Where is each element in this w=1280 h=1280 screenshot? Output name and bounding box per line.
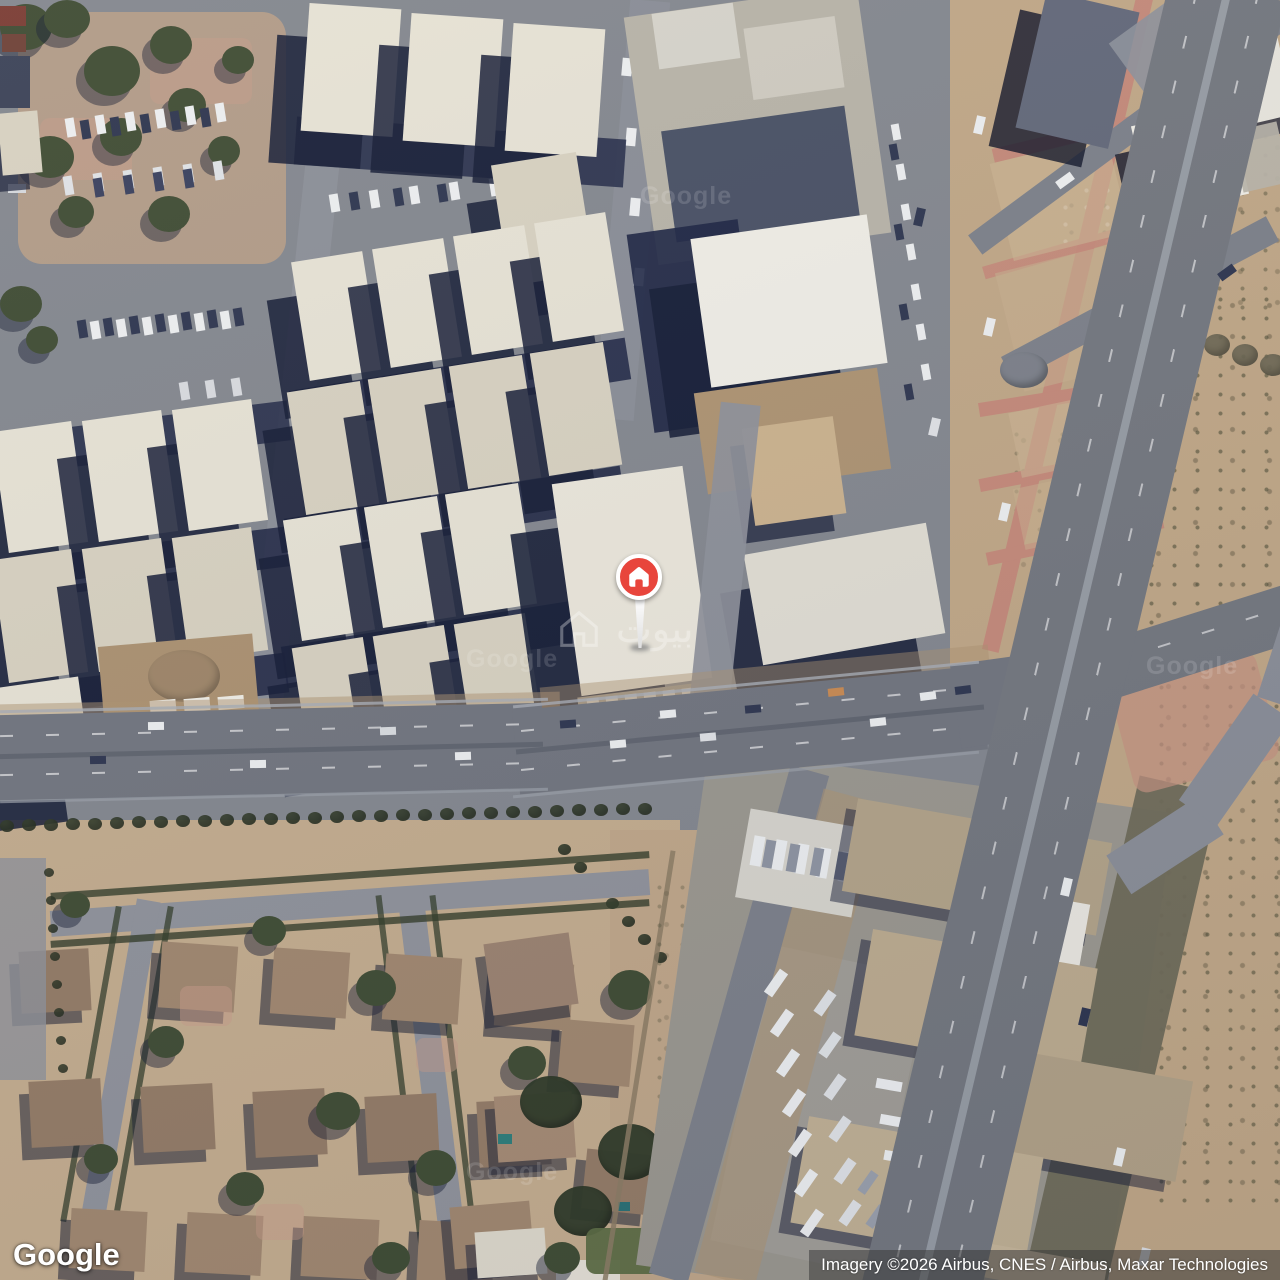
villa <box>483 932 578 1015</box>
building <box>82 410 178 542</box>
hedge <box>58 1064 68 1073</box>
hedge <box>44 819 58 831</box>
attribution-bar: Imagery ©2026 Airbus, CNES / Airbus, Max… <box>809 1250 1280 1280</box>
tree <box>0 286 42 322</box>
car <box>870 717 887 727</box>
hedge <box>48 924 58 933</box>
hedge <box>374 810 388 822</box>
hedge <box>0 820 14 832</box>
hedge <box>46 896 56 905</box>
parking-strip <box>0 858 46 1080</box>
bush <box>1204 334 1230 356</box>
attribution-text: Imagery ©2026 Airbus, CNES / Airbus, Max… <box>821 1255 1268 1274</box>
dirt-mound <box>148 650 220 702</box>
hedge <box>308 812 322 824</box>
building <box>505 23 606 157</box>
google-logo[interactable]: Google <box>13 1237 120 1273</box>
tree <box>44 0 90 38</box>
courtyard <box>416 1038 458 1072</box>
hedge <box>558 844 571 855</box>
tree <box>148 196 190 232</box>
courtyard <box>180 986 232 1026</box>
hedge <box>110 817 124 829</box>
building <box>0 110 43 175</box>
hedge <box>574 862 587 873</box>
roof-structure <box>0 6 26 26</box>
hedge <box>484 807 498 819</box>
tree <box>84 46 140 96</box>
bush <box>1260 354 1280 376</box>
car <box>380 727 396 736</box>
car <box>250 760 266 768</box>
hedge <box>330 811 344 823</box>
car <box>560 719 577 728</box>
villa <box>28 1078 103 1148</box>
tree <box>252 916 286 946</box>
hedge <box>264 813 278 825</box>
villa <box>140 1083 215 1153</box>
car <box>610 739 627 748</box>
construction-slab <box>652 3 741 70</box>
hedge <box>440 808 454 820</box>
roof-structure <box>0 56 30 108</box>
construction-slab <box>743 16 844 100</box>
tree <box>100 118 142 156</box>
marker-pin[interactable] <box>616 554 662 600</box>
building <box>172 399 268 531</box>
hedge <box>88 818 102 830</box>
hedge <box>50 952 60 961</box>
car <box>828 687 845 697</box>
white-building <box>474 1228 547 1279</box>
car <box>90 756 106 764</box>
building <box>403 13 504 147</box>
tree <box>372 1242 410 1274</box>
villa <box>252 1088 327 1158</box>
car <box>660 709 677 718</box>
building <box>301 3 402 137</box>
hedge <box>622 916 635 927</box>
hedge <box>220 814 234 826</box>
hedge <box>198 815 212 827</box>
ne-uturn <box>1000 352 1048 388</box>
hedge <box>550 805 564 817</box>
tree <box>508 1046 546 1080</box>
white-tower <box>690 214 887 387</box>
tree <box>148 1026 184 1058</box>
car <box>455 752 471 761</box>
tree <box>58 196 94 228</box>
satellite-map-view[interactable]: Google Google Google Google بيوت Google … <box>0 0 1280 1280</box>
courtyard <box>256 1204 304 1240</box>
hedge <box>594 804 608 816</box>
villa <box>300 1216 379 1280</box>
house-icon <box>626 564 652 590</box>
car <box>700 732 717 741</box>
tree <box>60 892 90 918</box>
hedge <box>56 1036 66 1045</box>
tree <box>26 326 58 354</box>
parked-car <box>8 184 26 193</box>
villa <box>184 1212 263 1276</box>
hedge <box>418 809 432 821</box>
hedge <box>54 1008 64 1017</box>
tree-cluster <box>520 1076 582 1128</box>
villa <box>270 947 350 1018</box>
hedge <box>44 868 54 877</box>
tree <box>222 46 254 74</box>
tree <box>226 1172 264 1206</box>
tree <box>316 1092 360 1130</box>
hedge <box>528 806 542 818</box>
car <box>745 704 762 713</box>
pool <box>618 1202 630 1211</box>
parked-car <box>629 198 641 217</box>
tree <box>150 26 192 64</box>
car <box>148 722 164 730</box>
bush <box>1232 344 1258 366</box>
hedge <box>638 803 652 815</box>
tree <box>356 970 396 1006</box>
tree <box>416 1150 456 1186</box>
hedge <box>154 816 168 828</box>
tree <box>84 1144 118 1174</box>
parked-car <box>625 128 637 147</box>
roof-structure <box>2 34 26 52</box>
tree <box>544 1242 580 1274</box>
hedge <box>52 980 62 989</box>
pool <box>498 1134 512 1144</box>
villa <box>557 1019 634 1087</box>
